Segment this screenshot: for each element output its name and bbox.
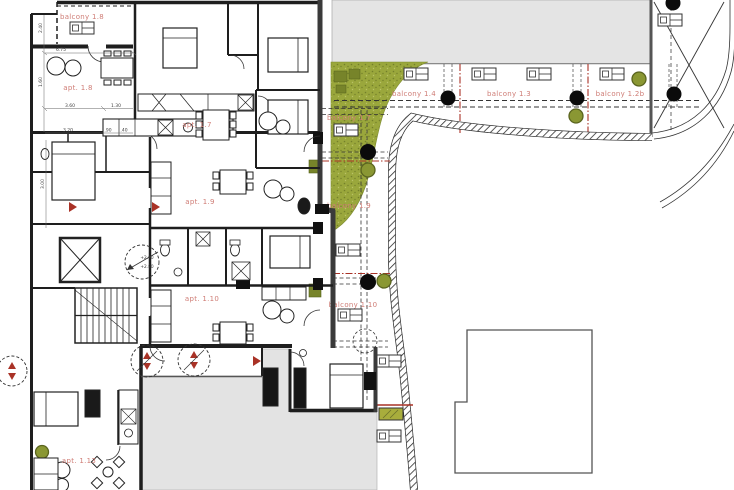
apartment-label-1-7: apt. 1.7 [182,121,211,129]
table-icon [600,68,624,80]
sink-icon [300,350,307,357]
balcony-label-1-4: balcony 1.4 [392,90,436,98]
balcony-label-1-3: balcony 1.3 [487,90,531,98]
column-icon [360,144,376,160]
toilet-icon [231,244,240,256]
balcony-label-1-2b: balcony 1.2b [596,90,645,98]
bed-icon [268,38,308,72]
dim-label: 3.20 [63,128,73,134]
balcony-label-1-7: balcony 1.7 [327,114,371,122]
dim-label: 1.30 [111,103,121,109]
table-icon [334,124,358,136]
toilet-icon [41,149,49,160]
bed-icon [52,142,95,200]
dim-label: 3.60 [65,103,75,109]
tree-icon [36,446,49,459]
apartment-label-1-13: apt. 1.13 [62,457,96,465]
balcony-label-1-10: balcony 1.10 [329,301,378,309]
planter-icon [336,85,346,93]
column-icon [570,91,585,106]
bed-icon [330,364,363,408]
floor-plan: balcony 1.4 balcony 1.3 balcony 1.2b bal… [0,0,734,490]
sofa-icon [280,309,294,323]
tree-icon [377,274,391,288]
column-icon [667,87,682,102]
building-footprint-outline [455,330,592,473]
table-icon [527,68,551,80]
table-icon [472,68,496,80]
floor-plan-page: balcony 1.4 balcony 1.3 balcony 1.2b bal… [0,0,734,490]
wardrobe [262,287,306,300]
sofa-icon [65,60,81,76]
level-value-lower: +2.80 [140,264,153,270]
shaft [263,368,278,406]
bed-icon [270,236,310,268]
table-icon [377,355,401,367]
tree-icon [569,109,583,123]
wardrobe [138,94,254,111]
sofa-icon [276,120,290,134]
table-icon [404,68,428,80]
sink-icon [174,268,182,276]
table-icon [336,244,360,256]
dim-label: 6.75 [56,47,66,53]
planter-icon [379,408,403,420]
sofa-icon [264,180,282,198]
sink-icon [125,429,133,437]
apartment-label-1-10: apt. 1.10 [185,295,219,303]
sofa-icon [263,301,281,319]
sofa-icon [47,57,65,75]
armchair-icon [298,198,310,214]
dim-label: 3.00 [40,179,46,189]
apartment-label-1-8: apt. 1.8 [63,84,92,92]
planter-icon [349,69,360,79]
wardrobe [294,368,306,408]
bed-icon [163,28,197,68]
bed-icon [34,392,78,426]
toilet-icon [161,244,170,256]
apartment-label-1-9: apt. 1.9 [185,198,214,206]
table-icon [658,14,682,26]
dim-label: .90 [104,128,111,134]
planter-icon [334,71,347,82]
table-icon [70,22,94,34]
kitchen-counter [151,290,171,342]
column-icon [360,274,376,290]
dim-label: .40 [120,128,127,134]
level-value-upper: +2.90 [140,255,153,261]
wardrobe [85,390,100,417]
sofa-icon [259,112,277,130]
column-icon [441,91,456,106]
sofa-icon [280,187,294,201]
dim-label: 2.40 [38,23,44,33]
dining-table-icon [101,51,133,85]
dim-label: 1.60 [38,77,44,87]
table-icon [377,430,401,442]
tree-icon [632,72,646,86]
adjacent-building-top [332,0,651,64]
tree-icon [361,163,375,177]
balcony-label-1-8: balcony 1.8 [60,13,104,21]
table-icon [338,309,362,321]
